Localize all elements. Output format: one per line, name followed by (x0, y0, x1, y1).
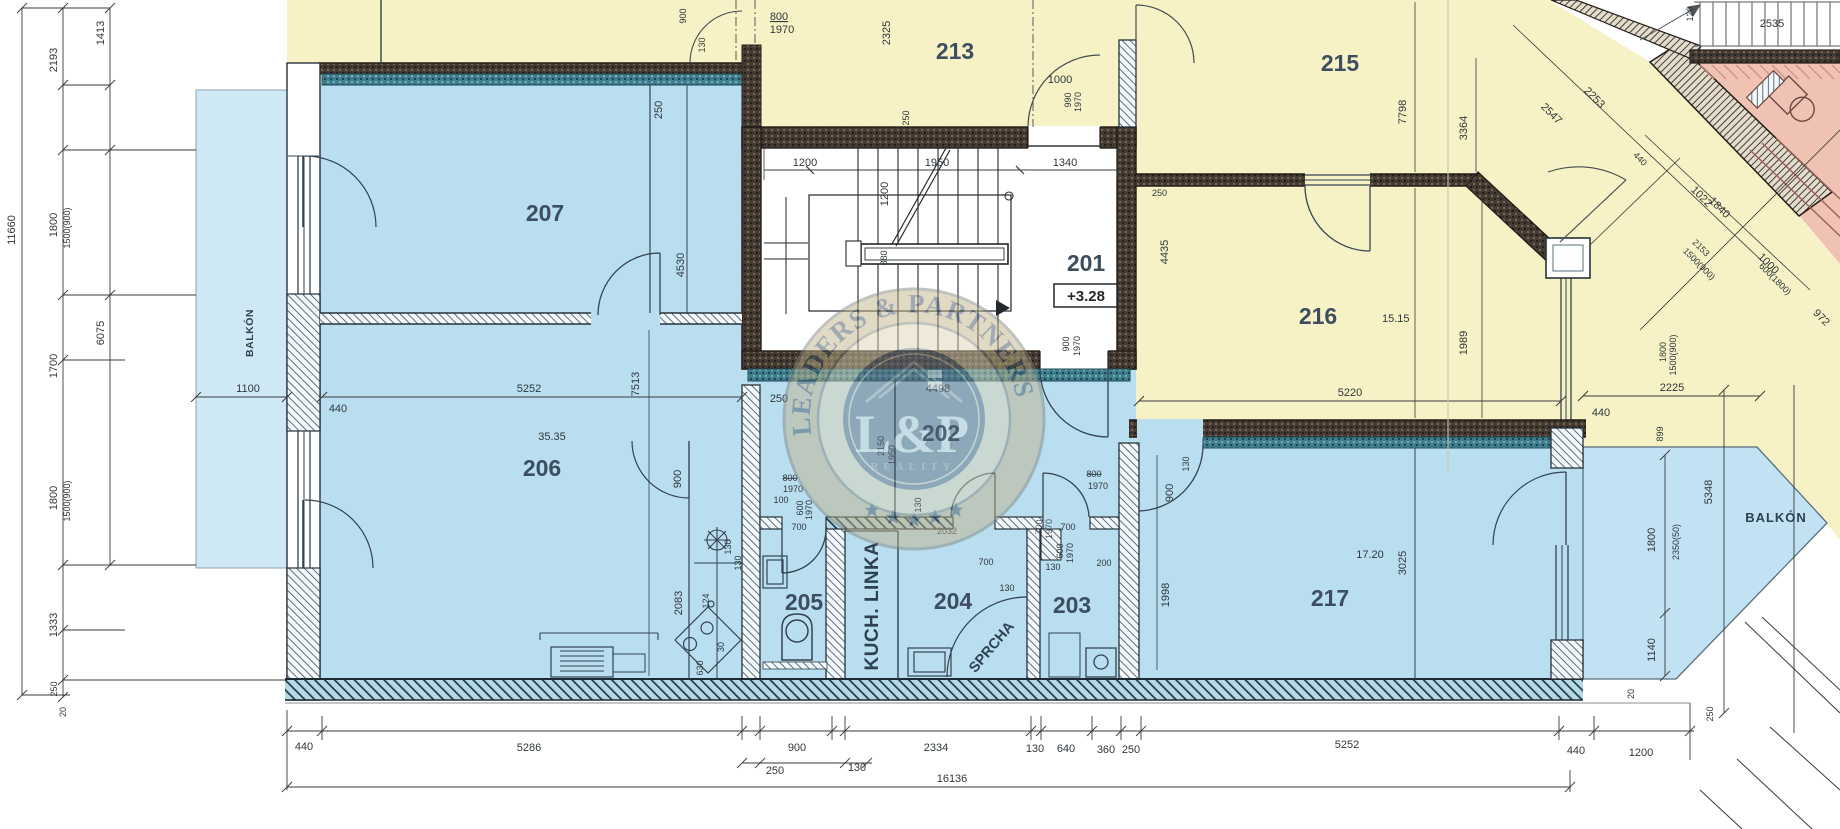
svg-text:250: 250 (49, 681, 59, 696)
svg-text:2334: 2334 (924, 742, 948, 754)
svg-text:4530: 4530 (675, 253, 687, 277)
svg-text:3025: 3025 (1397, 551, 1409, 575)
svg-text:1970: 1970 (1065, 543, 1075, 563)
svg-text:130: 130 (1026, 743, 1044, 755)
svg-text:630: 630 (695, 660, 705, 675)
svg-text:20: 20 (58, 707, 68, 717)
svg-text:1970: 1970 (770, 24, 794, 36)
svg-text:1800: 1800 (48, 486, 60, 510)
svg-text:16136: 16136 (937, 773, 968, 785)
svg-text:5252: 5252 (1335, 739, 1359, 751)
svg-text:1100: 1100 (236, 383, 260, 395)
svg-text:1989: 1989 (1458, 331, 1470, 355)
svg-text:KUCH. LINKA: KUCH. LINKA (862, 542, 883, 671)
svg-text:5348: 5348 (1703, 480, 1715, 504)
svg-text:100: 100 (773, 495, 788, 505)
svg-text:213: 213 (936, 38, 974, 64)
svg-text:130: 130 (723, 539, 733, 554)
svg-text:+3.28: +3.28 (1067, 288, 1105, 305)
svg-text:1413: 1413 (95, 21, 107, 45)
svg-text:1700: 1700 (48, 354, 60, 378)
svg-text:7513: 7513 (630, 372, 642, 396)
svg-text:2350(50): 2350(50) (1671, 524, 1681, 560)
svg-text:130: 130 (913, 497, 923, 512)
svg-text:204: 204 (934, 588, 973, 614)
svg-text:250: 250 (766, 765, 784, 777)
svg-text:207: 207 (526, 200, 564, 226)
svg-text:5252: 5252 (517, 383, 541, 395)
svg-text:1970: 1970 (1088, 481, 1108, 491)
svg-text:800: 800 (770, 11, 788, 23)
svg-text:1200: 1200 (1629, 747, 1653, 759)
svg-text:440: 440 (1567, 745, 1585, 757)
svg-text:1140: 1140 (1646, 638, 1658, 662)
svg-text:1500(900): 1500(900) (62, 480, 72, 521)
svg-text:124: 124 (701, 593, 711, 608)
svg-text:35.35: 35.35 (538, 431, 566, 443)
svg-text:7798: 7798 (1397, 100, 1409, 124)
svg-text:2225: 2225 (1660, 382, 1684, 394)
svg-text:1200: 1200 (879, 182, 891, 206)
svg-text:360: 360 (1097, 744, 1115, 756)
svg-text:1500(900): 1500(900) (1668, 334, 1678, 375)
svg-text:1970: 1970 (1073, 92, 1083, 112)
svg-text:1970: 1970 (804, 500, 814, 520)
svg-text:990: 990 (1063, 92, 1073, 107)
svg-text:2083: 2083 (673, 591, 685, 615)
svg-text:700: 700 (1060, 522, 1075, 532)
svg-text:17.20: 17.20 (1356, 549, 1384, 561)
svg-text:216: 216 (1299, 303, 1337, 329)
svg-text:250: 250 (1705, 706, 1715, 721)
svg-text:700: 700 (978, 557, 993, 567)
svg-text:200: 200 (1096, 558, 1111, 568)
svg-text:600: 600 (1055, 543, 1065, 558)
svg-text:130: 130 (1181, 456, 1191, 471)
svg-text:700: 700 (1034, 519, 1044, 534)
svg-text:3364: 3364 (1458, 116, 1470, 140)
svg-text:215: 215 (1321, 50, 1360, 76)
svg-text:BALKÓN: BALKÓN (1745, 510, 1807, 525)
svg-text:1000: 1000 (1048, 74, 1072, 86)
svg-text:640: 640 (1057, 743, 1075, 755)
svg-text:205: 205 (785, 589, 824, 615)
svg-text:4435: 4435 (1159, 240, 1171, 264)
svg-text:130: 130 (1045, 562, 1060, 572)
svg-text:440: 440 (1592, 407, 1610, 419)
svg-text:1970: 1970 (1044, 519, 1054, 539)
svg-text:899: 899 (1655, 426, 1665, 441)
svg-text:440: 440 (295, 741, 313, 753)
svg-text:130: 130 (697, 37, 707, 52)
svg-text:250: 250 (1152, 188, 1167, 198)
svg-text:1200: 1200 (793, 157, 817, 169)
svg-text:1800: 1800 (1646, 528, 1658, 552)
svg-text:2193: 2193 (48, 48, 60, 72)
svg-text:250: 250 (1122, 744, 1140, 756)
svg-text:1970: 1970 (783, 484, 803, 494)
svg-text:5286: 5286 (517, 742, 541, 754)
svg-text:700: 700 (791, 522, 806, 532)
svg-text:206: 206 (523, 455, 561, 481)
svg-text:800: 800 (1086, 469, 1101, 479)
svg-text:880: 880 (879, 250, 889, 265)
svg-text:440: 440 (329, 403, 347, 415)
svg-text:REALITY: REALITY (870, 461, 955, 473)
svg-text:1500(900): 1500(900) (62, 207, 72, 248)
svg-text:201: 201 (1067, 250, 1106, 276)
svg-text:5220: 5220 (1338, 387, 1362, 399)
svg-text:217: 217 (1311, 585, 1349, 611)
svg-text:130: 130 (848, 762, 866, 774)
svg-text:1998: 1998 (1160, 583, 1172, 607)
svg-text:900: 900 (1061, 336, 1071, 351)
svg-text:20: 20 (1626, 689, 1636, 699)
svg-text:203: 203 (1053, 592, 1091, 618)
svg-text:250: 250 (653, 101, 665, 119)
svg-text:1340: 1340 (1053, 157, 1077, 169)
svg-text:900: 900 (788, 742, 806, 754)
svg-text:900: 900 (1164, 484, 1176, 502)
svg-text:1970: 1970 (1072, 336, 1082, 356)
svg-text:900: 900 (678, 8, 688, 23)
svg-text:1800: 1800 (1658, 342, 1668, 362)
svg-text:2535: 2535 (1760, 18, 1784, 30)
svg-text:15.15: 15.15 (1382, 313, 1410, 325)
svg-text:120: 120 (1685, 6, 1695, 21)
svg-text:BALKÓN: BALKÓN (243, 309, 256, 357)
svg-text:2325: 2325 (881, 21, 893, 45)
svg-text:6075: 6075 (95, 321, 107, 345)
svg-text:250: 250 (901, 110, 911, 125)
svg-text:1800: 1800 (48, 213, 60, 237)
svg-text:900: 900 (672, 470, 684, 488)
svg-text:1950: 1950 (925, 157, 949, 169)
svg-text:1333: 1333 (48, 613, 60, 637)
svg-text:30: 30 (716, 642, 726, 652)
svg-text:11660: 11660 (6, 215, 18, 245)
svg-text:130: 130 (999, 583, 1014, 593)
svg-text:130: 130 (733, 555, 743, 570)
svg-text:202: 202 (922, 420, 960, 446)
